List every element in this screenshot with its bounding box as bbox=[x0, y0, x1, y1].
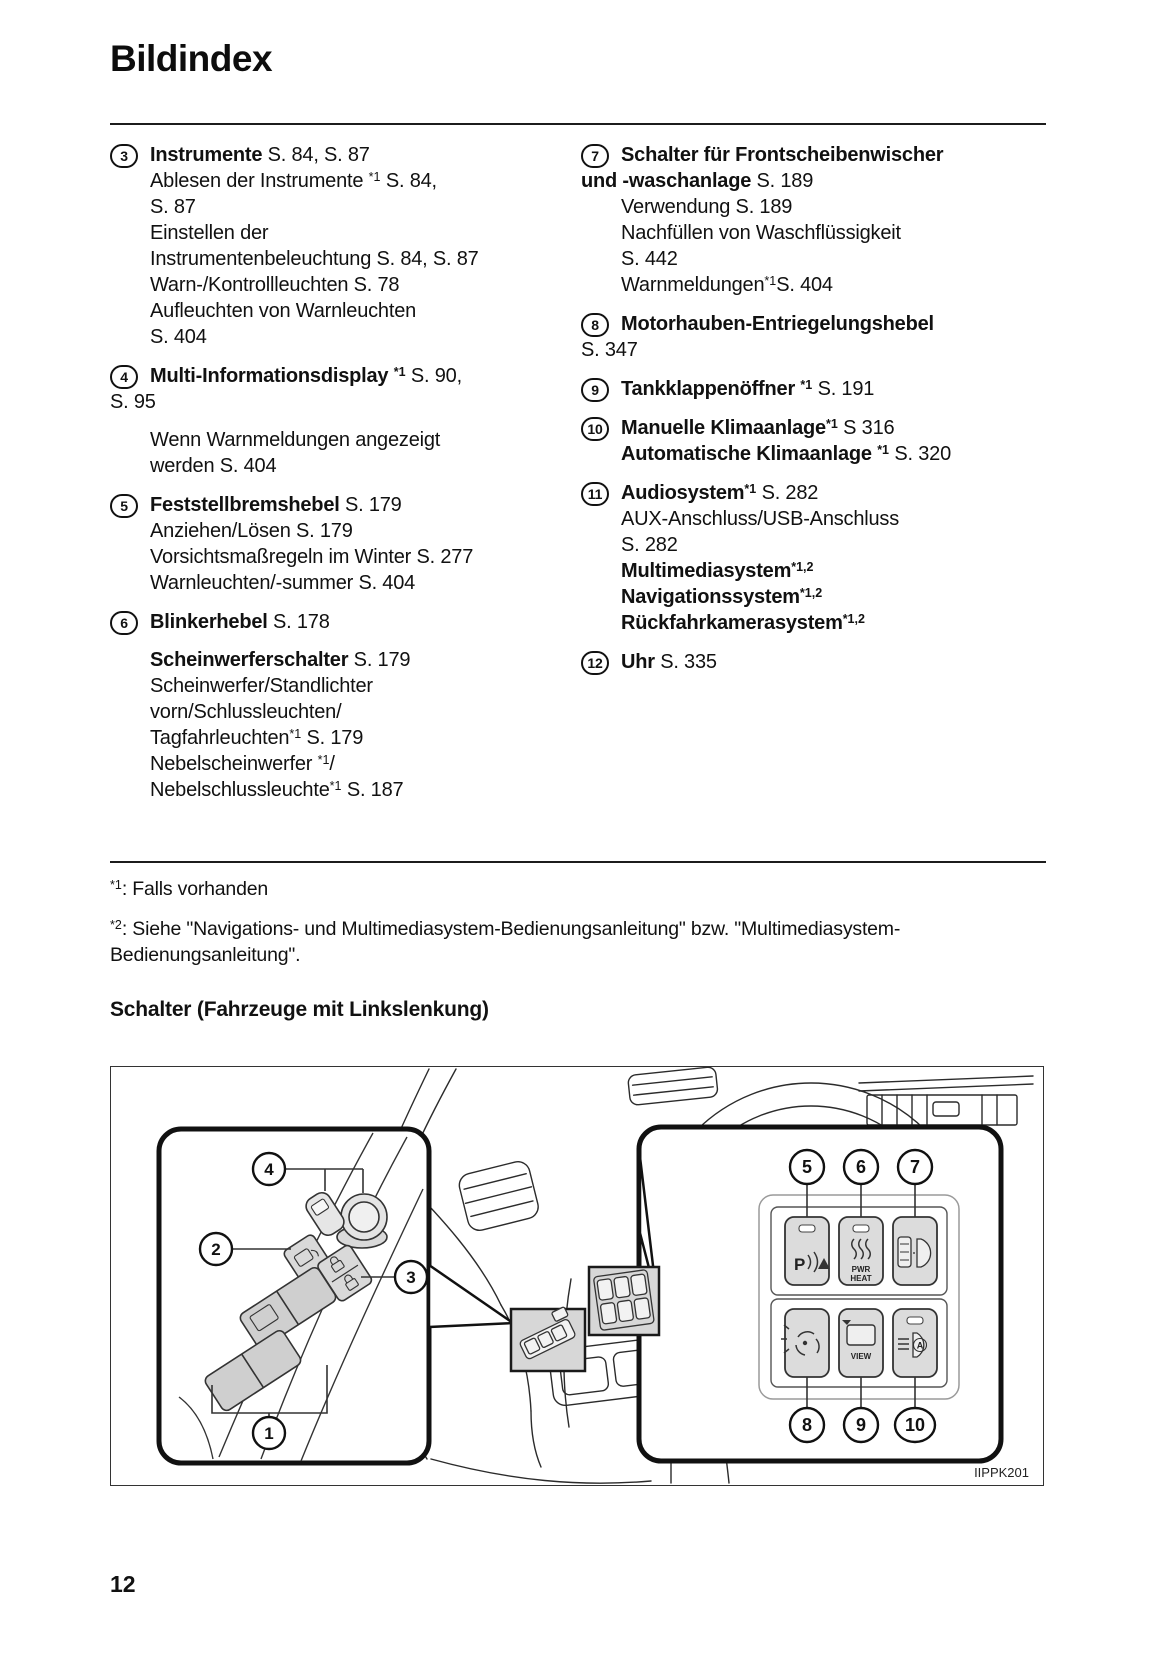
footnote-1-marker: *1 bbox=[110, 878, 122, 892]
index-text: Manuelle Klimaanlage bbox=[621, 417, 826, 439]
index-item-11: 11Audiosystem*1 S. 282AUX-Anschluss/USB-… bbox=[581, 480, 1046, 636]
callout-10-label: 10 bbox=[905, 1415, 925, 1435]
index-line: Warn-/Kontrollleuchten S. 78 bbox=[110, 272, 530, 298]
index-text: S. 404 bbox=[776, 274, 833, 296]
callout-6-label: 6 bbox=[856, 1157, 866, 1177]
index-column-left: 3Instrumente S. 84, S. 87Ablesen der Ins… bbox=[110, 142, 530, 816]
parking-sensor-switch-icon: P bbox=[785, 1217, 830, 1285]
door-switch-inset bbox=[511, 1307, 585, 1371]
index-item-8: 8Motorhauben-EntriegelungshebelS. 347 bbox=[581, 311, 1046, 363]
index-line: Instrumentenbeleuchtung S. 84, S. 87 bbox=[110, 246, 530, 272]
index-line: Aufleuchten von Warnleuchten bbox=[110, 298, 530, 324]
index-item-10: 10Manuelle Klimaanlage*1 S 316Automatisc… bbox=[581, 415, 1046, 467]
index-text: S. 347 bbox=[581, 339, 638, 361]
index-text: Nachfüllen von Waschflüssigkeit bbox=[621, 222, 901, 244]
index-text: Scheinwerferschalter bbox=[150, 649, 348, 671]
figure-frame: 4 2 3 1 P PWR HEAT bbox=[110, 1066, 1044, 1486]
index-item-9: 9Tankklappenöffner *1 S. 191 bbox=[581, 376, 1046, 402]
index-line: Nebelscheinwerfer *1/ bbox=[110, 751, 530, 777]
footnote-marker-ref: *1 bbox=[318, 753, 330, 767]
index-line: 5Feststellbremshebel S. 179 bbox=[110, 492, 530, 518]
index-item-4: 4Multi-Informationsdisplay *1 S. 90,S. 9… bbox=[110, 363, 530, 479]
index-text: Vorsichtsmaßregeln im Winter S. 277 bbox=[150, 546, 473, 568]
index-text: Warnmeldungen bbox=[621, 274, 764, 296]
index-text: S. 84, bbox=[381, 170, 437, 192]
index-text: Uhr bbox=[621, 651, 655, 673]
index-text: vorn/Schlussleuchten/ bbox=[150, 701, 341, 723]
index-text: S. 95 bbox=[110, 391, 156, 413]
index-text: Multimediasystem bbox=[621, 560, 791, 582]
auto-headlight-switch-icon: A bbox=[893, 1309, 937, 1377]
index-text: S. 282 bbox=[621, 534, 678, 556]
index-line: Vorsichtsmaßregeln im Winter S. 277 bbox=[110, 544, 530, 570]
index-text: S. 179 bbox=[348, 649, 410, 671]
footnote-marker-ref: *1 bbox=[764, 274, 776, 288]
index-line: S. 404 bbox=[110, 324, 530, 350]
item-number-badge: 7 bbox=[581, 144, 609, 168]
left-pointer-arrow bbox=[429, 1265, 513, 1327]
index-text: Navigationssystem bbox=[621, 586, 800, 608]
side-vent-sketch bbox=[457, 1159, 541, 1233]
index-text: Instrumentenbeleuchtung S. 84, S. 87 bbox=[150, 248, 479, 270]
page-title: Bildindex bbox=[110, 38, 272, 80]
index-item-3: 3Instrumente S. 84, S. 87Ablesen der Ins… bbox=[110, 142, 530, 350]
index-text: Blinkerhebel bbox=[150, 611, 268, 633]
index-text: Tankklappenöffner bbox=[621, 378, 800, 400]
index-line: 12Uhr S. 335 bbox=[581, 649, 1046, 675]
index-line: Tagfahrleuchten*1 S. 179 bbox=[110, 725, 530, 751]
svg-text:VIEW: VIEW bbox=[851, 1352, 872, 1361]
index-text: S. 87 bbox=[150, 196, 196, 218]
index-line: Einstellen der bbox=[110, 220, 530, 246]
index-text: S. 178 bbox=[268, 611, 330, 633]
footnote-marker-ref: *1 bbox=[369, 170, 381, 184]
index-text: Aufleuchten von Warnleuchten bbox=[150, 300, 416, 322]
switch-grid-inset bbox=[589, 1267, 659, 1335]
callout-2-label: 2 bbox=[211, 1240, 220, 1259]
footnote-marker-ref: *1 bbox=[289, 727, 301, 741]
item-number-badge: 5 bbox=[110, 494, 138, 518]
index-item-7: 7Schalter für Frontscheibenwischerund -w… bbox=[581, 142, 1046, 298]
index-line: S. 95 bbox=[110, 389, 530, 415]
footnote-2-text: : Siehe "Navigations- und Multimediasyst… bbox=[110, 918, 900, 966]
item-number-badge: 9 bbox=[581, 378, 609, 402]
index-text: Automatische Klimaanlage bbox=[621, 443, 877, 465]
index-text: S 316 bbox=[838, 417, 895, 439]
callout-3-label: 3 bbox=[406, 1268, 415, 1287]
figure-code: IIPPK201 bbox=[974, 1465, 1029, 1480]
item-number-badge: 8 bbox=[581, 313, 609, 337]
index-column-right: 7Schalter für Frontscheibenwischerund -w… bbox=[581, 142, 1046, 688]
index-line: Warnmeldungen*1S. 404 bbox=[581, 272, 1046, 298]
index-text: Verwendung S. 189 bbox=[621, 196, 792, 218]
index-text: Einstellen der bbox=[150, 222, 268, 244]
item-number-badge: 4 bbox=[110, 365, 138, 389]
index-text: Nebelschlussleuchte bbox=[150, 779, 330, 801]
section-heading: Schalter (Fahrzeuge mit Linkslenkung) bbox=[110, 998, 489, 1022]
footnote-2: *2: Siehe "Navigations- und Multimediasy… bbox=[110, 916, 1046, 968]
wiper-deicer-switch-icon bbox=[781, 1309, 829, 1377]
callout-1-label: 1 bbox=[264, 1424, 273, 1443]
index-text: S. 187 bbox=[341, 779, 403, 801]
index-text: Multi-Informationsdisplay bbox=[150, 365, 394, 387]
index-text: S. 84, S. 87 bbox=[262, 144, 369, 166]
callout-7-label: 7 bbox=[910, 1157, 920, 1177]
index-line: Multimediasystem*1,2 bbox=[581, 558, 1046, 584]
index-text: S. 179 bbox=[340, 494, 402, 516]
svg-text:PWR: PWR bbox=[852, 1265, 871, 1274]
index-text: Wenn Warnmeldungen angezeigt bbox=[150, 429, 440, 451]
index-line: S. 87 bbox=[110, 194, 530, 220]
index-line: werden S. 404 bbox=[110, 453, 530, 479]
index-text: Ablesen der Instrumente bbox=[150, 170, 369, 192]
svg-text:P: P bbox=[794, 1255, 805, 1274]
callout-5-label: 5 bbox=[802, 1157, 812, 1177]
index-line: Scheinwerferschalter S. 179 bbox=[110, 647, 530, 673]
footnote-marker-ref: *1,2 bbox=[843, 612, 865, 626]
index-text: S. 335 bbox=[655, 651, 717, 673]
index-line: S. 442 bbox=[581, 246, 1046, 272]
index-text: / bbox=[329, 753, 334, 775]
index-line: 8Motorhauben-Entriegelungshebel bbox=[581, 311, 1046, 337]
index-text: Anziehen/Lösen S. 179 bbox=[150, 520, 353, 542]
index-line: 11Audiosystem*1 S. 282 bbox=[581, 480, 1046, 506]
index-line: 6Blinkerhebel S. 178 bbox=[110, 609, 530, 635]
index-text: Instrumente bbox=[150, 144, 262, 166]
index-item-6: 6Blinkerhebel S. 178Scheinwerferschalter… bbox=[110, 609, 530, 803]
footnote-2-marker: *2 bbox=[110, 918, 122, 932]
index-line: Nebelschlussleuchte*1 S. 187 bbox=[110, 777, 530, 803]
index-line: Verwendung S. 189 bbox=[581, 194, 1046, 220]
center-vent-sketch bbox=[628, 1067, 719, 1106]
index-text: S. 320 bbox=[889, 443, 951, 465]
callout-4-label: 4 bbox=[264, 1160, 274, 1179]
index-text: und -waschanlage bbox=[581, 170, 751, 192]
index-line: Automatische Klimaanlage *1 S. 320 bbox=[581, 441, 1046, 467]
footnote-divider bbox=[110, 861, 1046, 863]
index-line: Navigationssystem*1,2 bbox=[581, 584, 1046, 610]
footnote-1-text: : Falls vorhanden bbox=[122, 878, 268, 900]
index-text: AUX-Anschluss/USB-Anschluss bbox=[621, 508, 899, 530]
door-panel-callout-box: 4 2 3 1 bbox=[159, 1129, 429, 1463]
index-line: Scheinwerfer/Standlichter bbox=[110, 673, 530, 699]
index-text: Rückfahrkamerasystem bbox=[621, 612, 843, 634]
index-text: S. 442 bbox=[621, 248, 678, 270]
index-line: Ablesen der Instrumente *1 S. 84, bbox=[110, 168, 530, 194]
index-text: werden S. 404 bbox=[150, 455, 276, 477]
index-line: und -waschanlage S. 189 bbox=[581, 168, 1046, 194]
item-number-badge: 6 bbox=[110, 611, 138, 635]
index-line: S. 282 bbox=[581, 532, 1046, 558]
index-item-12: 12Uhr S. 335 bbox=[581, 649, 1046, 675]
index-line: AUX-Anschluss/USB-Anschluss bbox=[581, 506, 1046, 532]
index-text: Feststellbremshebel bbox=[150, 494, 340, 516]
pwr-heat-switch-icon: PWR HEAT bbox=[839, 1217, 883, 1285]
index-line: Anziehen/Lösen S. 179 bbox=[110, 518, 530, 544]
switch-panel-callout-box: P PWR HEAT bbox=[639, 1127, 1001, 1461]
callout-8-label: 8 bbox=[802, 1415, 812, 1435]
index-line: Rückfahrkamerasystem*1,2 bbox=[581, 610, 1046, 636]
callout-9-label: 9 bbox=[856, 1415, 866, 1435]
footnote-marker-ref: *1,2 bbox=[791, 560, 813, 574]
index-line: 7Schalter für Frontscheibenwischer bbox=[581, 142, 1046, 168]
index-text: Warnleuchten/-summer S. 404 bbox=[150, 572, 415, 594]
page-number: 12 bbox=[110, 1571, 136, 1598]
dashboard-illustration: 4 2 3 1 P PWR HEAT bbox=[111, 1067, 1043, 1485]
index-line: S. 347 bbox=[581, 337, 1046, 363]
index-text: Scheinwerfer/Standlichter bbox=[150, 675, 373, 697]
index-text: Motorhauben-Entriegelungshebel bbox=[621, 313, 934, 335]
index-text: S. 404 bbox=[150, 326, 207, 348]
item-number-badge: 3 bbox=[110, 144, 138, 168]
item-number-badge: 12 bbox=[581, 651, 609, 675]
svg-text:HEAT: HEAT bbox=[850, 1274, 871, 1283]
footnote-marker-ref: *1 bbox=[330, 779, 342, 793]
index-line: 4Multi-Informationsdisplay *1 S. 90, bbox=[110, 363, 530, 389]
footnote-marker-ref: *1 bbox=[394, 365, 406, 379]
index-text: Schalter für Frontscheibenwischer bbox=[621, 144, 943, 166]
footnote-marker-ref: *1 bbox=[826, 417, 838, 431]
index-text: Warn-/Kontrollleuchten S. 78 bbox=[150, 274, 399, 296]
footnote-marker-ref: *1 bbox=[744, 482, 756, 496]
index-line: Wenn Warnmeldungen angezeigt bbox=[110, 427, 530, 453]
index-line: 9Tankklappenöffner *1 S. 191 bbox=[581, 376, 1046, 402]
camera-view-switch-icon: VIEW bbox=[839, 1309, 883, 1377]
index-line: 3Instrumente S. 84, S. 87 bbox=[110, 142, 530, 168]
footnote-marker-ref: *1,2 bbox=[800, 586, 822, 600]
index-text: Nebelscheinwerfer bbox=[150, 753, 318, 775]
index-text: Audiosystem bbox=[621, 482, 744, 504]
index-text: Tagfahrleuchten bbox=[150, 727, 289, 749]
svg-text:A: A bbox=[917, 1341, 924, 1351]
index-text: S. 191 bbox=[812, 378, 874, 400]
item-number-badge: 10 bbox=[581, 417, 609, 441]
index-line: vorn/Schlussleuchten/ bbox=[110, 699, 530, 725]
index-line: 10Manuelle Klimaanlage*1 S 316 bbox=[581, 415, 1046, 441]
index-line: Warnleuchten/-summer S. 404 bbox=[110, 570, 530, 596]
footnote-marker-ref: *1 bbox=[877, 443, 889, 457]
item-number-badge: 11 bbox=[581, 482, 609, 506]
footnote-marker-ref: *1 bbox=[800, 378, 812, 392]
headlight-washer-switch-icon bbox=[893, 1217, 937, 1285]
header-divider bbox=[110, 123, 1046, 125]
index-line: Nachfüllen von Waschflüssigkeit bbox=[581, 220, 1046, 246]
index-item-5: 5Feststellbremshebel S. 179Anziehen/Löse… bbox=[110, 492, 530, 596]
index-text: S. 189 bbox=[751, 170, 813, 192]
index-text: S. 179 bbox=[301, 727, 363, 749]
footnote-1: *1: Falls vorhanden bbox=[110, 876, 1046, 902]
index-text: S. 282 bbox=[756, 482, 818, 504]
index-text: S. 90, bbox=[406, 365, 462, 387]
